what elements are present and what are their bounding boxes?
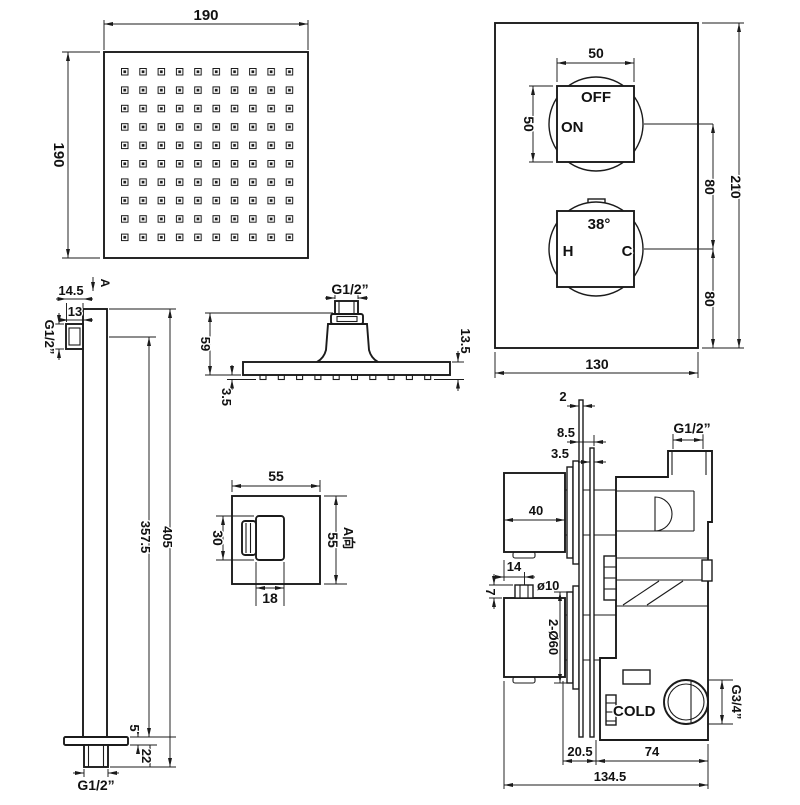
dim-head-thread: G1/2”	[325, 281, 369, 299]
view-head-side: G1/2” 59 3.5 13.5	[198, 281, 473, 406]
dim-label-head-height: 59	[198, 337, 213, 351]
label-cold-inlet: COLD	[613, 703, 656, 720]
dim-head-width: 190	[104, 7, 308, 50]
arm-bar	[83, 309, 107, 737]
dim-label-knob-width: 50	[588, 45, 604, 61]
label-inlet-thread: G3/4”	[729, 685, 744, 720]
dim-label-depth-b: 3.5	[551, 446, 569, 461]
nozzle-grid	[117, 64, 302, 251]
dim-plate-thickness: 13.5	[434, 328, 473, 391]
dim-label-plate-gap: 2	[559, 389, 566, 404]
arm-flange	[64, 737, 128, 745]
valve-body	[600, 451, 712, 740]
view-a-connector	[256, 516, 284, 560]
label-arm-thread-end: G1/2”	[77, 777, 114, 793]
technical-drawing-page: 190 190 OFF ON 38° H C 50 50	[0, 0, 800, 800]
dim-plate-width: 130	[495, 352, 698, 378]
dim-head-height: 190	[50, 52, 100, 258]
view-arm-side: A 14.5 13 G1/2” 357.5	[42, 277, 176, 793]
body-side-port	[702, 560, 712, 581]
dim-label-total-depth: 134.5	[594, 769, 627, 784]
dim-label-depth-a: 8.5	[557, 425, 575, 440]
dim-label-outlet-width: 13	[68, 304, 82, 319]
dim-label-arm-offset: 14.5	[58, 283, 83, 298]
arm-thread-stub	[84, 745, 108, 767]
view-valve-section: COLD 2 8.5 3.5 40 G1/2”	[483, 389, 744, 789]
label-view-a: A向	[341, 527, 356, 549]
label-head-thread: G1/2”	[331, 281, 368, 297]
head-plate-side	[243, 362, 450, 375]
dim-label-knob-depth: 40	[529, 503, 543, 518]
view-a-cap	[242, 521, 256, 555]
wall-mount-plate	[590, 448, 594, 737]
dim-label-view-a-height: 55	[325, 532, 341, 548]
dim-outlet-thread: G1/2”	[673, 420, 711, 449]
dim-label-escutcheon: 2-Ø60	[546, 619, 561, 655]
dim-label-screw-height: 7	[483, 588, 498, 595]
label-temperature: 38°	[588, 216, 611, 233]
head-cone	[317, 324, 378, 362]
label-hot: H	[563, 243, 574, 260]
dim-label-stub: 22	[139, 749, 154, 763]
dim-label-knob-gap: 80	[702, 179, 718, 195]
lower-escutcheon	[567, 592, 573, 683]
dim-label-wall-to-body: 20.5	[567, 744, 592, 759]
dim-label-total-length: 405	[160, 526, 175, 548]
dim-label-body-depth: 74	[645, 744, 660, 759]
dim-label-nozzle-height: 3.5	[219, 388, 234, 406]
dim-label-knob-bottom: 80	[702, 291, 718, 307]
label-outlet-thread: G1/2”	[673, 420, 710, 436]
dim-label-plate-thickness: 13.5	[458, 328, 473, 353]
dim-inlet-thread: G3/4”	[708, 680, 744, 724]
valve-plate	[495, 23, 698, 348]
dim-label-to-outlet: 357.5	[138, 521, 153, 554]
head-swivel-nut	[331, 314, 363, 324]
inlet-fitting	[623, 670, 650, 684]
dim-label-view-a-width: 55	[268, 468, 284, 484]
view-a-detail: 55 55 A向 30 18	[210, 468, 356, 606]
label-on: ON	[561, 119, 584, 136]
view-a-marker-label: A	[98, 279, 112, 288]
view-valve-faceplate: OFF ON 38° H C 50 50 80 80 210	[495, 23, 744, 378]
wall-finish-plate	[579, 400, 583, 737]
dim-label-inner-height: 30	[210, 530, 226, 546]
upper-escutcheon	[567, 467, 573, 558]
label-cold: C	[622, 243, 633, 260]
dim-view-a-width: 55	[232, 468, 320, 492]
lower-escutcheon-outer	[573, 586, 579, 689]
label-arm-thread-side: G1/2”	[42, 320, 57, 355]
dim-label-head-width: 190	[193, 7, 218, 24]
label-off: OFF	[581, 89, 611, 106]
view-head-face: 190 190	[50, 7, 308, 258]
dim-label-inner-width: 18	[262, 590, 278, 606]
dim-label-plate-height: 210	[728, 175, 744, 199]
view-a-marker: A	[93, 277, 112, 291]
dim-label-plate-width: 130	[585, 356, 609, 372]
dim-label-screw-dia: ø10	[537, 578, 559, 593]
upper-escutcheon-outer	[573, 461, 579, 564]
fixing-screw	[515, 585, 533, 598]
dim-label-head-height: 190	[50, 142, 67, 167]
dim-label-knob-height: 50	[521, 116, 537, 132]
dim-arm-thread-end: G1/2”	[73, 769, 119, 793]
dim-arm-flange: 5 22	[127, 724, 157, 767]
dim-label-screw-offset: 14	[507, 559, 522, 574]
dim-plate-gap: 2	[559, 389, 595, 406]
dim-arm-lengths: 357.5 405	[109, 309, 176, 767]
dim-label-flange: 5	[127, 724, 142, 731]
technical-drawing-canvas: 190 190 OFF ON 38° H C 50 50	[0, 0, 800, 800]
dim-view-a-height: 55 A向	[324, 496, 356, 584]
